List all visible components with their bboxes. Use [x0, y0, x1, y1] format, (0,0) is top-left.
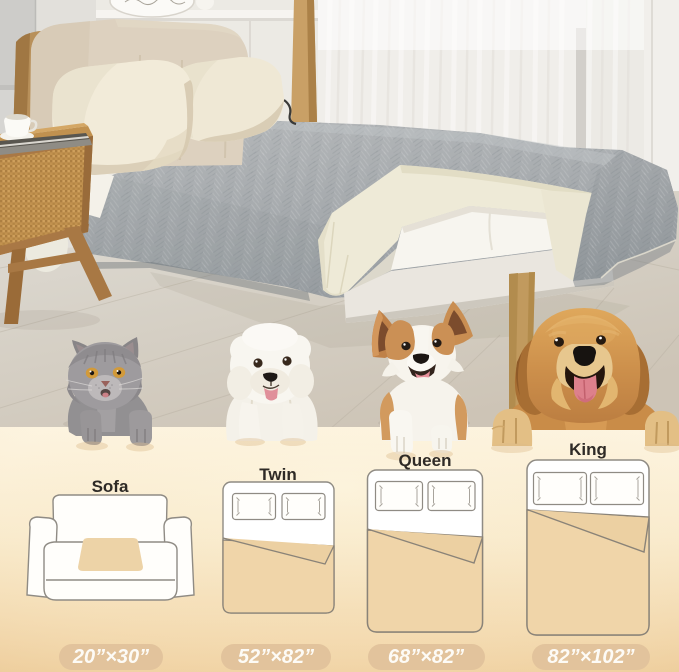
- svg-text:52”×82”: 52”×82”: [238, 646, 314, 668]
- svg-text:82”×102”: 82”×102”: [547, 646, 634, 668]
- svg-text:Queen: Queen: [399, 451, 452, 470]
- svg-text:68”×82”: 68”×82”: [388, 646, 464, 668]
- svg-text:Twin: Twin: [259, 465, 296, 484]
- svg-text:King: King: [569, 440, 607, 459]
- svg-text:20”×30”: 20”×30”: [72, 646, 149, 668]
- svg-text:Sofa: Sofa: [92, 477, 129, 496]
